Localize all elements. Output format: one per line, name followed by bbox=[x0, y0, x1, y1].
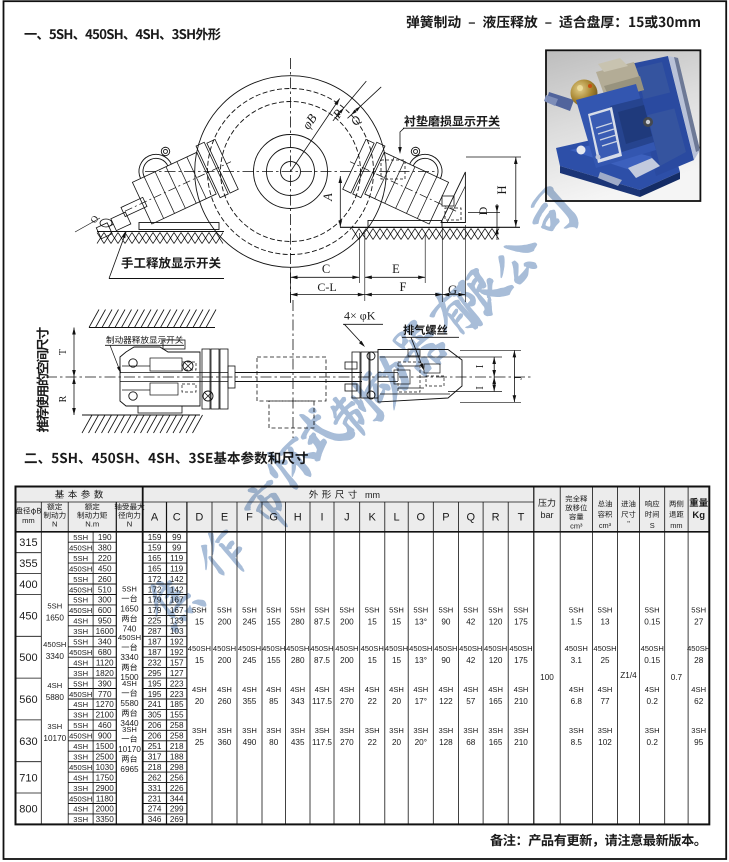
svg-text:3SH: 3SH bbox=[73, 627, 88, 636]
svg-text:J: J bbox=[514, 376, 525, 380]
svg-text:3SH: 3SH bbox=[122, 725, 137, 734]
svg-text:200: 200 bbox=[218, 617, 232, 626]
svg-text:165: 165 bbox=[148, 554, 162, 563]
svg-text:42: 42 bbox=[466, 656, 476, 665]
svg-text:287: 287 bbox=[148, 627, 162, 636]
svg-text:27: 27 bbox=[694, 617, 704, 626]
svg-text:15: 15 bbox=[392, 656, 402, 665]
svg-text:80: 80 bbox=[269, 738, 279, 747]
svg-text:17°: 17° bbox=[415, 697, 427, 706]
svg-text:2500: 2500 bbox=[96, 753, 115, 762]
svg-text:20: 20 bbox=[195, 697, 205, 706]
svg-text:187: 187 bbox=[148, 648, 162, 657]
svg-text:280: 280 bbox=[291, 656, 305, 665]
svg-text:4SH: 4SH bbox=[192, 685, 207, 694]
svg-text:155: 155 bbox=[267, 617, 281, 626]
svg-text:770: 770 bbox=[98, 690, 112, 699]
svg-text:5SH: 5SH bbox=[413, 605, 428, 614]
svg-text:165: 165 bbox=[148, 564, 162, 573]
svg-text:1270: 1270 bbox=[96, 700, 115, 709]
svg-text:1650: 1650 bbox=[120, 604, 139, 613]
svg-text:4SH: 4SH bbox=[389, 685, 404, 694]
svg-text:5SH: 5SH bbox=[73, 554, 88, 563]
svg-text:E: E bbox=[221, 512, 228, 524]
svg-text:740: 740 bbox=[123, 624, 137, 633]
svg-text:343: 343 bbox=[291, 697, 305, 706]
svg-text:223: 223 bbox=[170, 690, 184, 699]
svg-text:3340: 3340 bbox=[120, 653, 139, 662]
svg-text:435: 435 bbox=[291, 738, 305, 747]
svg-text:331: 331 bbox=[148, 784, 162, 793]
svg-text:450SH: 450SH bbox=[361, 644, 384, 653]
svg-text:1120: 1120 bbox=[96, 658, 114, 667]
svg-text:0.15: 0.15 bbox=[644, 617, 660, 626]
svg-text:155: 155 bbox=[267, 656, 281, 665]
svg-text:4SH: 4SH bbox=[266, 685, 281, 694]
svg-text:85: 85 bbox=[269, 697, 279, 706]
svg-text:315: 315 bbox=[19, 537, 37, 549]
svg-text:mm: mm bbox=[365, 490, 380, 500]
svg-text:210: 210 bbox=[514, 697, 528, 706]
svg-text:1180: 1180 bbox=[96, 794, 114, 803]
svg-text:5SH: 5SH bbox=[645, 605, 660, 614]
svg-text:2900: 2900 bbox=[96, 784, 115, 793]
svg-text:10170: 10170 bbox=[118, 745, 141, 754]
svg-text:260: 260 bbox=[218, 697, 232, 706]
svg-text:5SH: 5SH bbox=[463, 605, 478, 614]
svg-text:450: 450 bbox=[19, 610, 37, 622]
svg-text:15: 15 bbox=[368, 656, 378, 665]
svg-text:3SH: 3SH bbox=[488, 726, 503, 735]
svg-text:3SH: 3SH bbox=[242, 726, 257, 735]
svg-text:3SH: 3SH bbox=[73, 711, 88, 720]
svg-text:4SH: 4SH bbox=[73, 773, 88, 782]
svg-text:450SH: 450SH bbox=[188, 644, 211, 653]
svg-text:450SH: 450SH bbox=[409, 644, 432, 653]
svg-text:R: R bbox=[492, 512, 500, 524]
svg-text:4SH: 4SH bbox=[488, 685, 503, 694]
svg-text:57: 57 bbox=[466, 697, 476, 706]
svg-text:5SH: 5SH bbox=[73, 721, 88, 730]
svg-text:3SH: 3SH bbox=[47, 722, 62, 731]
svg-text:120: 120 bbox=[489, 656, 503, 665]
svg-text:K: K bbox=[369, 512, 377, 524]
svg-text:13°: 13° bbox=[415, 656, 427, 665]
svg-text:260: 260 bbox=[98, 575, 112, 584]
svg-text:155: 155 bbox=[170, 711, 184, 720]
svg-text:C: C bbox=[173, 512, 181, 524]
svg-text:5SH: 5SH bbox=[691, 605, 706, 614]
svg-text:T: T bbox=[58, 349, 69, 355]
svg-text:87.5: 87.5 bbox=[314, 617, 330, 626]
svg-text:3SH: 3SH bbox=[340, 726, 355, 735]
svg-text:710: 710 bbox=[19, 772, 37, 784]
svg-text:5SH: 5SH bbox=[389, 605, 404, 614]
svg-text:344: 344 bbox=[170, 794, 184, 803]
svg-text:280: 280 bbox=[291, 617, 305, 626]
svg-text:117.5: 117.5 bbox=[312, 697, 332, 706]
svg-text:8.5: 8.5 bbox=[571, 738, 583, 747]
svg-text:0.2: 0.2 bbox=[647, 697, 659, 706]
svg-text:500: 500 bbox=[19, 652, 37, 664]
svg-text:218: 218 bbox=[170, 742, 184, 751]
svg-text:15: 15 bbox=[195, 656, 205, 665]
svg-text:450SH: 450SH bbox=[310, 644, 333, 653]
svg-text:68: 68 bbox=[466, 738, 476, 747]
svg-text:226: 226 bbox=[170, 784, 184, 793]
svg-text:390: 390 bbox=[98, 679, 112, 688]
svg-text:175: 175 bbox=[514, 656, 528, 665]
svg-text:25: 25 bbox=[195, 738, 205, 747]
svg-text:N: N bbox=[127, 520, 132, 529]
svg-text:2000: 2000 bbox=[96, 805, 115, 814]
svg-text:5580: 5580 bbox=[120, 699, 139, 708]
svg-text:232: 232 bbox=[148, 658, 162, 667]
svg-text:A: A bbox=[151, 512, 159, 524]
svg-text:200: 200 bbox=[340, 656, 354, 665]
svg-text:3SH: 3SH bbox=[514, 726, 529, 735]
svg-text:450SH: 450SH bbox=[459, 644, 482, 653]
svg-text:4SH: 4SH bbox=[47, 681, 62, 690]
svg-text:450SH: 450SH bbox=[565, 644, 588, 653]
svg-text:99: 99 bbox=[172, 544, 182, 553]
svg-text:360: 360 bbox=[218, 738, 232, 747]
svg-text:5SH: 5SH bbox=[73, 575, 88, 584]
svg-text:450SH: 450SH bbox=[43, 640, 66, 649]
svg-text:28: 28 bbox=[694, 656, 704, 665]
svg-text:5SH: 5SH bbox=[266, 605, 281, 614]
svg-text:5880: 5880 bbox=[46, 693, 65, 702]
svg-text:φB: φB bbox=[299, 111, 320, 132]
svg-text:4SH: 4SH bbox=[242, 685, 257, 694]
svg-text:269: 269 bbox=[170, 815, 184, 824]
svg-text:4SH: 4SH bbox=[73, 742, 88, 751]
svg-text:5SH: 5SH bbox=[488, 605, 503, 614]
svg-text:450SH: 450SH bbox=[687, 644, 710, 653]
svg-text:450SH: 450SH bbox=[69, 544, 92, 553]
svg-text:450SH: 450SH bbox=[69, 794, 92, 803]
svg-text:270: 270 bbox=[340, 738, 354, 747]
svg-text:251: 251 bbox=[148, 742, 162, 751]
svg-text:355: 355 bbox=[243, 697, 257, 706]
svg-text:190: 190 bbox=[98, 533, 112, 542]
svg-text:450: 450 bbox=[98, 564, 112, 573]
svg-text:22: 22 bbox=[368, 697, 378, 706]
svg-text:15: 15 bbox=[368, 617, 378, 626]
svg-text:120: 120 bbox=[489, 617, 503, 626]
svg-text:4SH: 4SH bbox=[73, 805, 88, 814]
svg-text:5SH: 5SH bbox=[47, 601, 62, 610]
svg-text:mm: mm bbox=[670, 521, 682, 530]
svg-text:4SH: 4SH bbox=[315, 685, 330, 694]
svg-text:0.7: 0.7 bbox=[671, 673, 683, 682]
svg-text:I: I bbox=[475, 365, 486, 368]
svg-text:4SH: 4SH bbox=[73, 700, 88, 709]
svg-text:25: 25 bbox=[600, 656, 610, 665]
svg-text:R: R bbox=[58, 395, 69, 402]
svg-text:P: P bbox=[442, 512, 449, 524]
svg-text:87.5: 87.5 bbox=[314, 656, 330, 665]
svg-text:O: O bbox=[89, 214, 101, 225]
svg-text:F: F bbox=[246, 512, 253, 524]
svg-text:Q: Q bbox=[467, 512, 476, 524]
svg-text:3.1: 3.1 bbox=[571, 656, 583, 665]
svg-text:119: 119 bbox=[170, 554, 183, 563]
svg-text:4SH: 4SH bbox=[122, 679, 137, 688]
svg-text:245: 245 bbox=[243, 656, 257, 665]
svg-text:22: 22 bbox=[368, 738, 378, 747]
svg-text:900: 900 bbox=[98, 732, 112, 741]
svg-text:450SH: 450SH bbox=[385, 644, 408, 653]
svg-text:450SH: 450SH bbox=[593, 644, 616, 653]
svg-text:188: 188 bbox=[170, 753, 184, 762]
svg-text:20: 20 bbox=[392, 697, 402, 706]
svg-text:600: 600 bbox=[98, 606, 112, 615]
svg-text:H: H bbox=[495, 185, 509, 194]
svg-text:4SH: 4SH bbox=[598, 685, 613, 694]
svg-text:4SH: 4SH bbox=[439, 685, 454, 694]
svg-text:77: 77 bbox=[600, 697, 610, 706]
svg-text:O: O bbox=[417, 512, 426, 524]
svg-text:Kg: Kg bbox=[692, 510, 705, 521]
svg-text:5SH: 5SH bbox=[290, 605, 305, 614]
svg-text:5SH: 5SH bbox=[73, 679, 88, 688]
svg-text:20°: 20° bbox=[415, 738, 427, 747]
svg-text:A: A bbox=[321, 193, 335, 202]
svg-text:192: 192 bbox=[170, 648, 184, 657]
svg-text:450SH: 450SH bbox=[434, 644, 457, 653]
svg-text:5SH: 5SH bbox=[315, 605, 330, 614]
svg-text:159: 159 bbox=[148, 544, 162, 553]
svg-text:102: 102 bbox=[598, 738, 612, 747]
svg-text:117.5: 117.5 bbox=[312, 738, 332, 747]
svg-text:3SH: 3SH bbox=[463, 726, 478, 735]
svg-text:4SH: 4SH bbox=[463, 685, 478, 694]
svg-text:10170: 10170 bbox=[43, 734, 66, 743]
svg-text:450SH: 450SH bbox=[213, 644, 236, 653]
svg-text:5SH: 5SH bbox=[365, 605, 380, 614]
svg-text:680: 680 bbox=[98, 648, 112, 657]
svg-text:3SH: 3SH bbox=[73, 669, 88, 678]
svg-text:450SH: 450SH bbox=[509, 644, 532, 653]
svg-text:3SH: 3SH bbox=[73, 784, 88, 793]
svg-text:355: 355 bbox=[19, 558, 37, 570]
svg-text:5SH: 5SH bbox=[569, 605, 584, 614]
svg-text:450SH: 450SH bbox=[69, 732, 92, 741]
svg-text:3SH: 3SH bbox=[569, 726, 584, 735]
svg-text:3SH: 3SH bbox=[315, 726, 330, 735]
svg-text:200: 200 bbox=[340, 617, 354, 626]
svg-text:42: 42 bbox=[466, 617, 476, 626]
svg-text:62: 62 bbox=[694, 697, 704, 706]
svg-text:N.m: N.m bbox=[85, 520, 99, 529]
svg-text:3SH: 3SH bbox=[439, 726, 454, 735]
svg-text:H: H bbox=[294, 512, 302, 524]
svg-text:4SH: 4SH bbox=[73, 658, 88, 667]
svg-text:185: 185 bbox=[170, 700, 184, 709]
svg-text:15: 15 bbox=[392, 617, 402, 626]
svg-text:bar: bar bbox=[540, 510, 553, 520]
svg-text:3SH: 3SH bbox=[389, 726, 404, 735]
svg-text:241: 241 bbox=[148, 700, 162, 709]
svg-text:159: 159 bbox=[148, 533, 162, 542]
svg-text:5SH: 5SH bbox=[73, 638, 88, 647]
svg-text:800: 800 bbox=[19, 804, 37, 816]
svg-text:157: 157 bbox=[170, 658, 184, 667]
svg-text:206: 206 bbox=[148, 732, 162, 741]
svg-text:L: L bbox=[393, 512, 399, 524]
svg-text:mm: mm bbox=[22, 516, 35, 525]
svg-text:2100: 2100 bbox=[96, 711, 115, 720]
svg-text:95: 95 bbox=[694, 738, 704, 747]
svg-text:4SH: 4SH bbox=[569, 685, 584, 694]
svg-text:305: 305 bbox=[148, 711, 162, 720]
svg-text:1820: 1820 bbox=[96, 669, 115, 678]
svg-text:3SH: 3SH bbox=[645, 726, 660, 735]
svg-text:258: 258 bbox=[170, 732, 184, 741]
svg-text:3350: 3350 bbox=[96, 815, 115, 824]
svg-text:99: 99 bbox=[172, 533, 182, 542]
svg-text:450SH: 450SH bbox=[69, 564, 92, 573]
svg-text:1.5: 1.5 bbox=[571, 617, 583, 626]
svg-text:460: 460 bbox=[98, 721, 112, 730]
svg-text:1750: 1750 bbox=[96, 773, 115, 782]
svg-text:400: 400 bbox=[19, 579, 37, 591]
svg-text:450SH: 450SH bbox=[262, 644, 285, 653]
svg-text:0.2: 0.2 bbox=[647, 738, 659, 747]
svg-text:258: 258 bbox=[170, 721, 184, 730]
svg-text:274: 274 bbox=[148, 805, 162, 814]
svg-text:5SH: 5SH bbox=[514, 605, 529, 614]
svg-text:90: 90 bbox=[441, 656, 451, 665]
svg-text:950: 950 bbox=[98, 617, 112, 626]
svg-text:450SH: 450SH bbox=[69, 690, 92, 699]
svg-text:195: 195 bbox=[148, 690, 162, 699]
svg-text:6965: 6965 bbox=[120, 765, 139, 774]
svg-text:3SH: 3SH bbox=[598, 726, 613, 735]
svg-text:179: 179 bbox=[148, 606, 162, 615]
svg-text:1030: 1030 bbox=[96, 763, 115, 772]
svg-text:4SH: 4SH bbox=[413, 685, 428, 694]
svg-text:100: 100 bbox=[540, 673, 554, 682]
svg-text:6.8: 6.8 bbox=[571, 697, 583, 706]
svg-text:3SH: 3SH bbox=[73, 753, 88, 762]
svg-text:450SH: 450SH bbox=[118, 633, 141, 642]
svg-text:4SH: 4SH bbox=[645, 685, 660, 694]
svg-text:220: 220 bbox=[98, 554, 112, 563]
svg-text:119: 119 bbox=[170, 564, 183, 573]
svg-text:210: 210 bbox=[514, 738, 528, 747]
svg-text:I: I bbox=[475, 386, 486, 389]
svg-text:450SH: 450SH bbox=[69, 648, 92, 657]
svg-text:231: 231 bbox=[148, 794, 162, 803]
svg-text:13°: 13° bbox=[415, 617, 427, 626]
svg-text:3SH: 3SH bbox=[413, 726, 428, 735]
svg-text:317: 317 bbox=[148, 753, 162, 762]
svg-text:5SH: 5SH bbox=[122, 584, 137, 593]
svg-text:450SH: 450SH bbox=[238, 644, 261, 653]
svg-text:5SH: 5SH bbox=[598, 605, 613, 614]
svg-text:270: 270 bbox=[340, 697, 354, 706]
svg-text:450SH: 450SH bbox=[286, 644, 309, 653]
svg-text:20: 20 bbox=[392, 738, 402, 747]
svg-text:3SH: 3SH bbox=[192, 726, 207, 735]
svg-text:5SH: 5SH bbox=[439, 605, 454, 614]
svg-text:560: 560 bbox=[19, 694, 37, 706]
svg-text:4SH: 4SH bbox=[514, 685, 529, 694]
svg-text:J: J bbox=[344, 512, 350, 524]
svg-text:630: 630 bbox=[19, 736, 37, 748]
svg-text:4SH: 4SH bbox=[340, 685, 355, 694]
svg-text:165: 165 bbox=[489, 738, 503, 747]
svg-text:490: 490 bbox=[243, 738, 257, 747]
svg-text:192: 192 bbox=[170, 638, 184, 647]
svg-text:S: S bbox=[650, 521, 655, 530]
svg-text:510: 510 bbox=[98, 585, 112, 594]
svg-text:3SH: 3SH bbox=[217, 726, 232, 735]
svg-text:4SH: 4SH bbox=[217, 685, 232, 694]
svg-text:D: D bbox=[476, 206, 490, 215]
svg-text:": " bbox=[627, 519, 630, 528]
svg-text:195: 195 bbox=[148, 679, 162, 688]
svg-text:206: 206 bbox=[148, 721, 162, 730]
svg-text:5SH: 5SH bbox=[217, 605, 232, 614]
svg-text:cm³: cm³ bbox=[570, 522, 583, 531]
svg-text:13: 13 bbox=[600, 617, 610, 626]
svg-text:1650: 1650 bbox=[46, 613, 65, 622]
svg-text:5SH: 5SH bbox=[73, 533, 88, 542]
svg-text:225: 225 bbox=[148, 617, 162, 626]
svg-text:380: 380 bbox=[98, 544, 112, 553]
svg-text:3SH: 3SH bbox=[73, 815, 88, 824]
svg-text:4× φK: 4× φK bbox=[344, 309, 376, 323]
svg-text:Z1/4: Z1/4 bbox=[620, 671, 637, 680]
svg-text:298: 298 bbox=[170, 763, 184, 772]
svg-text:1500: 1500 bbox=[96, 742, 115, 751]
svg-text:I: I bbox=[320, 512, 323, 524]
svg-text:340: 340 bbox=[98, 638, 112, 647]
svg-text:262: 262 bbox=[148, 773, 162, 782]
svg-text:450SH: 450SH bbox=[641, 644, 664, 653]
svg-text:3SH: 3SH bbox=[290, 726, 305, 735]
svg-text:450SH: 450SH bbox=[69, 763, 92, 772]
svg-text:245: 245 bbox=[243, 617, 257, 626]
svg-text:223: 223 bbox=[170, 679, 184, 688]
svg-text:4SH: 4SH bbox=[290, 685, 305, 694]
svg-text:C-L: C-L bbox=[317, 280, 336, 294]
svg-text:3SH: 3SH bbox=[266, 726, 281, 735]
svg-text:90: 90 bbox=[441, 617, 451, 626]
svg-text:T: T bbox=[518, 512, 525, 524]
svg-text:127: 127 bbox=[170, 669, 184, 678]
svg-text:128: 128 bbox=[439, 738, 453, 747]
svg-text:3SH: 3SH bbox=[691, 726, 706, 735]
svg-text:N: N bbox=[52, 520, 57, 529]
svg-text:450SH: 450SH bbox=[69, 585, 92, 594]
svg-text:175: 175 bbox=[514, 617, 528, 626]
svg-text:346: 346 bbox=[148, 815, 162, 824]
svg-text:15: 15 bbox=[195, 617, 205, 626]
svg-text:256: 256 bbox=[170, 773, 184, 782]
svg-text:4SH: 4SH bbox=[73, 617, 88, 626]
svg-text:0.15: 0.15 bbox=[644, 656, 660, 665]
svg-text:218: 218 bbox=[148, 763, 162, 772]
svg-text:3340: 3340 bbox=[46, 652, 65, 661]
svg-text:E: E bbox=[392, 262, 400, 276]
svg-text:300: 300 bbox=[98, 596, 112, 605]
svg-text:F: F bbox=[400, 280, 407, 294]
svg-text:5SH: 5SH bbox=[242, 605, 257, 614]
